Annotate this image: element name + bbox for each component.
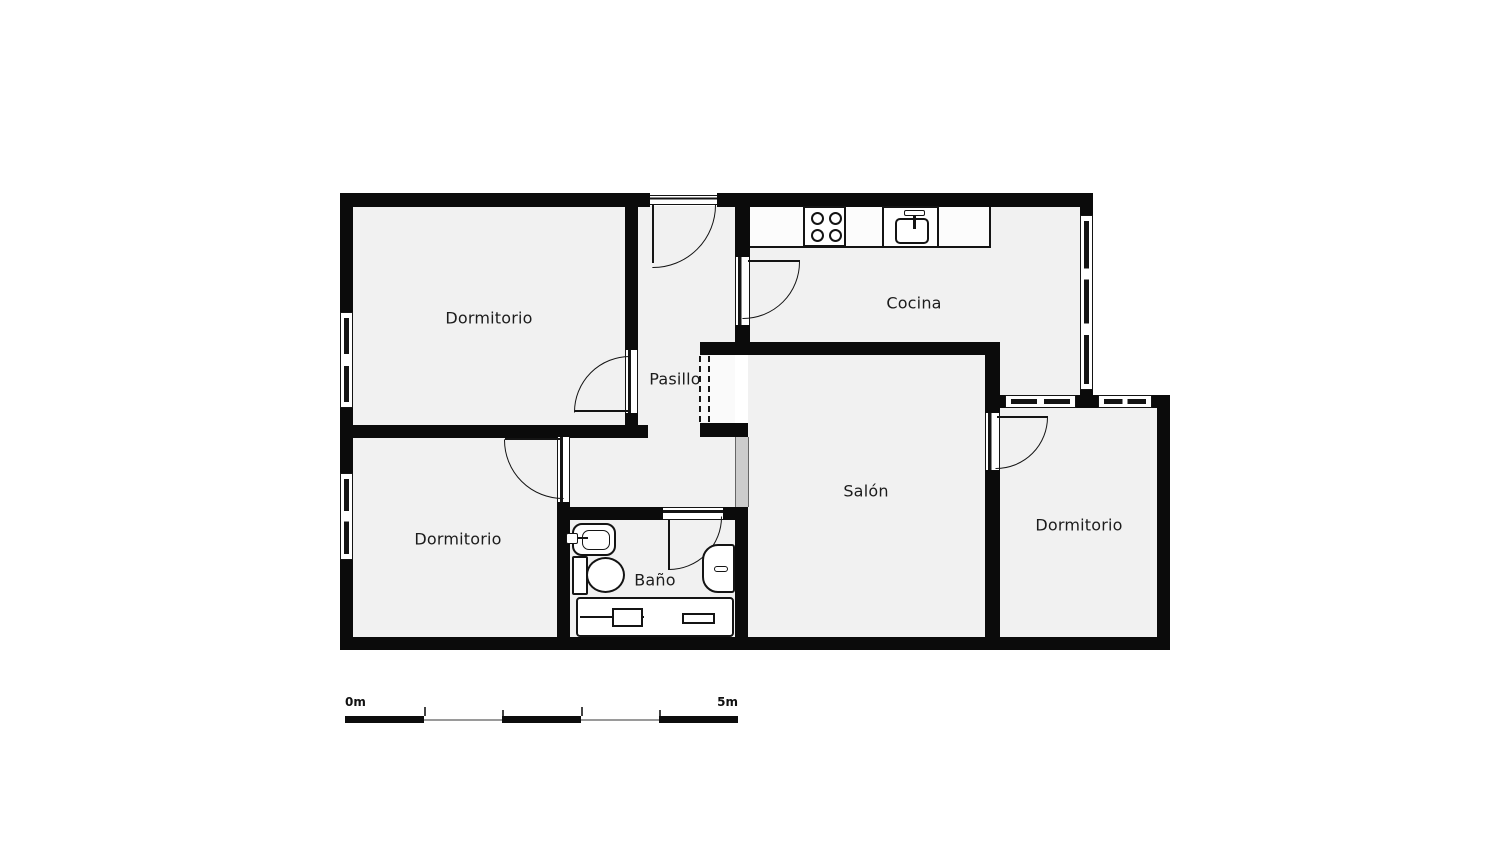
wall-segment [985, 342, 1000, 413]
window-glass [1104, 399, 1146, 404]
scale-tick [659, 710, 661, 716]
sink-basin [895, 218, 929, 244]
window-dormitorio-top-left [340, 312, 353, 408]
window-glass [1011, 399, 1070, 404]
window-dormitorio-right-1 [1005, 395, 1076, 408]
wall-segment [1080, 193, 1093, 215]
stove-burner [811, 229, 824, 242]
stove-icon [803, 206, 846, 247]
wall-segment [1157, 395, 1170, 650]
room-label-pasillo: Pasillo [649, 370, 701, 389]
passage-niche [710, 355, 735, 423]
scale-segment [345, 716, 424, 723]
room-cocina-extension [1000, 342, 1080, 395]
wall-segment [735, 507, 748, 650]
toilet-bowl [586, 557, 625, 593]
wall-segment [625, 193, 638, 350]
bidet-drain [714, 566, 728, 572]
scale-bar: 0m 5m [345, 695, 738, 727]
wall-segment [340, 408, 353, 473]
scale-segment [502, 716, 581, 723]
bathtub-faucet [612, 608, 643, 627]
scale-tick [502, 710, 504, 716]
washbasin-tap [566, 533, 578, 544]
room-label-salon: Salón [843, 482, 888, 501]
window-dormitorio-bottom-left [340, 473, 353, 560]
scale-tick [581, 707, 583, 716]
window-dormitorio-right-2 [1098, 395, 1152, 408]
kitchen-counter [750, 207, 991, 248]
window-cocina [1080, 215, 1093, 390]
washbasin-tap-stem [578, 537, 588, 539]
window-glass [344, 479, 349, 554]
scale-start-label: 0m [345, 695, 366, 709]
wall-segment [625, 413, 638, 437]
washbasin-icon [572, 523, 616, 556]
bathtub-soapdish [682, 613, 715, 624]
room-label-dormitorio-right: Dormitorio [1035, 516, 1122, 535]
wall-segment [700, 342, 1000, 355]
scale-segment-thin [581, 719, 659, 721]
interior-glazed-opening [735, 437, 749, 507]
wall-segment [340, 425, 648, 438]
wall-segment [717, 193, 1093, 207]
scale-end-label: 5m [717, 695, 738, 709]
floor-plan: Dormitorio Pasillo Cocina Salón Dormitor… [0, 0, 1500, 844]
room-label-cocina: Cocina [886, 294, 941, 313]
wall-segment [700, 423, 748, 437]
scale-segment [659, 716, 738, 723]
wall-segment [340, 193, 353, 312]
wall-segment [340, 637, 1170, 650]
bathtub-icon [576, 597, 734, 637]
room-label-dormitorio-bottom-left: Dormitorio [414, 530, 501, 549]
hallway-lobby [570, 437, 735, 507]
bidet-icon [702, 544, 735, 593]
stove-burner [811, 212, 824, 225]
kitchen-sink-icon [882, 206, 939, 248]
sink-tap-stem [913, 216, 916, 229]
wall-segment [735, 193, 750, 257]
window-glass [344, 318, 349, 402]
room-label-bano: Baño [634, 571, 676, 590]
open-passage-dashed [699, 356, 710, 422]
window-glass [1084, 221, 1089, 384]
stove-burner [829, 229, 842, 242]
room-salon: Salón [748, 355, 985, 637]
scale-segment-thin [424, 719, 502, 721]
wall-segment [340, 193, 650, 207]
scale-tick [424, 707, 426, 716]
room-label-dormitorio-top-left: Dormitorio [445, 309, 532, 328]
washbasin-bowl [582, 530, 610, 550]
wall-segment [557, 507, 663, 520]
stove-burner [829, 212, 842, 225]
door-entrance [650, 195, 717, 205]
floor-plan-canvas: Dormitorio Pasillo Cocina Salón Dormitor… [0, 0, 1500, 844]
wall-segment [985, 470, 1000, 650]
wall-segment [1076, 395, 1098, 408]
wall-segment [557, 502, 570, 650]
